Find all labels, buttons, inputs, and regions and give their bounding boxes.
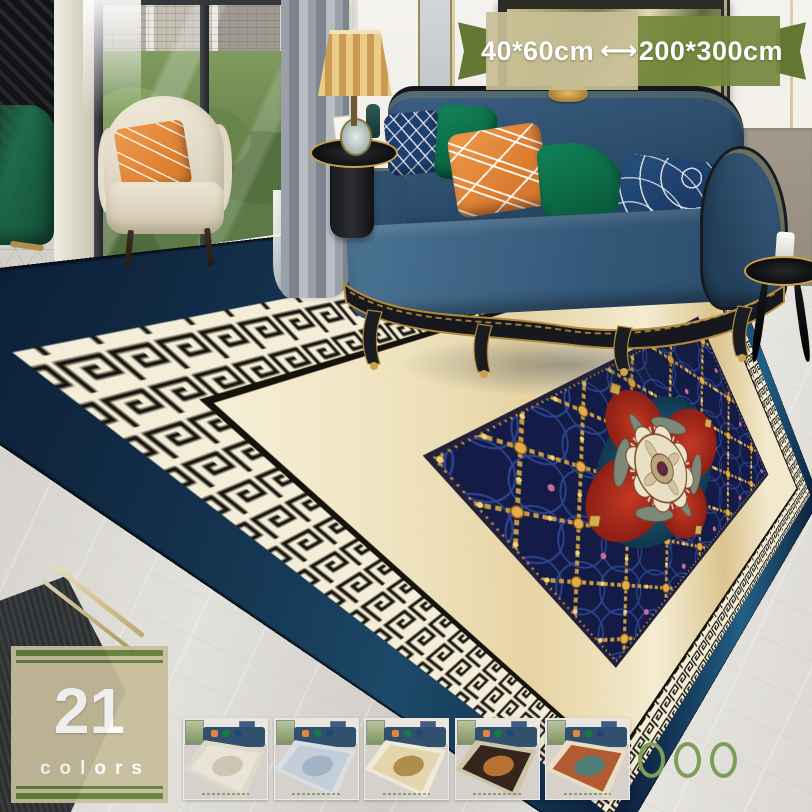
colors-count-badge: 21 colors <box>11 646 168 803</box>
table-lamp-shade <box>318 30 392 96</box>
lamp-stem <box>351 96 357 126</box>
colors-count: 21 <box>11 674 168 748</box>
thumb-cushion-orange <box>573 730 580 737</box>
badge-stripe <box>16 660 163 663</box>
thumb-window <box>185 720 204 745</box>
thumb-cushion-blue <box>326 730 333 737</box>
thumb-cushion-green <box>223 730 230 737</box>
thumb-cushion-blue <box>507 730 514 737</box>
thumb-cushion-green <box>404 730 411 737</box>
color-option-oval <box>710 742 737 778</box>
thumb-window <box>547 720 566 745</box>
thumb-cushion-green <box>585 730 592 737</box>
rug-variant-thumbnail-dark-brown[interactable] <box>455 718 540 800</box>
thumb-watermark <box>564 793 612 795</box>
size-range-text: 40*60cm ⟷ 200*300cm <box>458 12 806 90</box>
cushion-orange <box>446 121 552 219</box>
thumb-window <box>276 720 295 745</box>
product-photo-scene: 40*60cm ⟷ 200*300cm 21 colors <box>0 0 812 812</box>
badge-stripe <box>16 650 163 656</box>
size-min-label: 40*60cm <box>481 36 594 67</box>
rug-variant-thumbnail-ivory[interactable] <box>183 718 268 800</box>
thumb-window <box>366 720 385 745</box>
thumb-cushion-orange <box>392 730 399 737</box>
thumb-cushion-orange <box>302 730 309 737</box>
thumb-cushion-orange <box>483 730 490 737</box>
rug-variant-thumbnail-rust-red[interactable] <box>545 718 630 800</box>
green-velvet-chair <box>0 105 54 245</box>
thumb-cushion-green <box>314 730 321 737</box>
thumb-watermark <box>292 793 340 795</box>
size-range-banner: 40*60cm ⟷ 200*300cm <box>458 12 806 90</box>
rug-variant-thumbnail-blue-grey[interactable] <box>274 718 359 800</box>
thumb-cushion-blue <box>597 730 604 737</box>
rug-variant-thumbnail-beige-floral[interactable] <box>364 718 449 800</box>
thumb-cushion-green <box>495 730 502 737</box>
lamp-table-base <box>330 158 374 238</box>
color-option-oval <box>638 742 665 778</box>
sheer-curtain <box>83 0 141 120</box>
double-arrow-icon: ⟷ <box>600 36 638 66</box>
thumb-cushion-blue <box>416 730 423 737</box>
badge-stripe <box>16 793 163 799</box>
color-option-oval <box>674 742 701 778</box>
thumb-watermark <box>473 793 521 795</box>
thumb-watermark <box>383 793 431 795</box>
thumb-watermark <box>202 793 250 795</box>
badge-stripe <box>16 786 163 789</box>
sofa-carved-frame <box>338 278 788 388</box>
thumb-cushion-blue <box>235 730 242 737</box>
thumb-window <box>457 720 476 745</box>
more-colors-indicator <box>638 742 748 782</box>
armchair-seat <box>106 182 224 234</box>
colors-label: colors <box>17 758 174 780</box>
variant-thumbnails <box>183 718 633 800</box>
thumb-cushion-orange <box>211 730 218 737</box>
size-max-label: 200*300cm <box>639 36 783 67</box>
